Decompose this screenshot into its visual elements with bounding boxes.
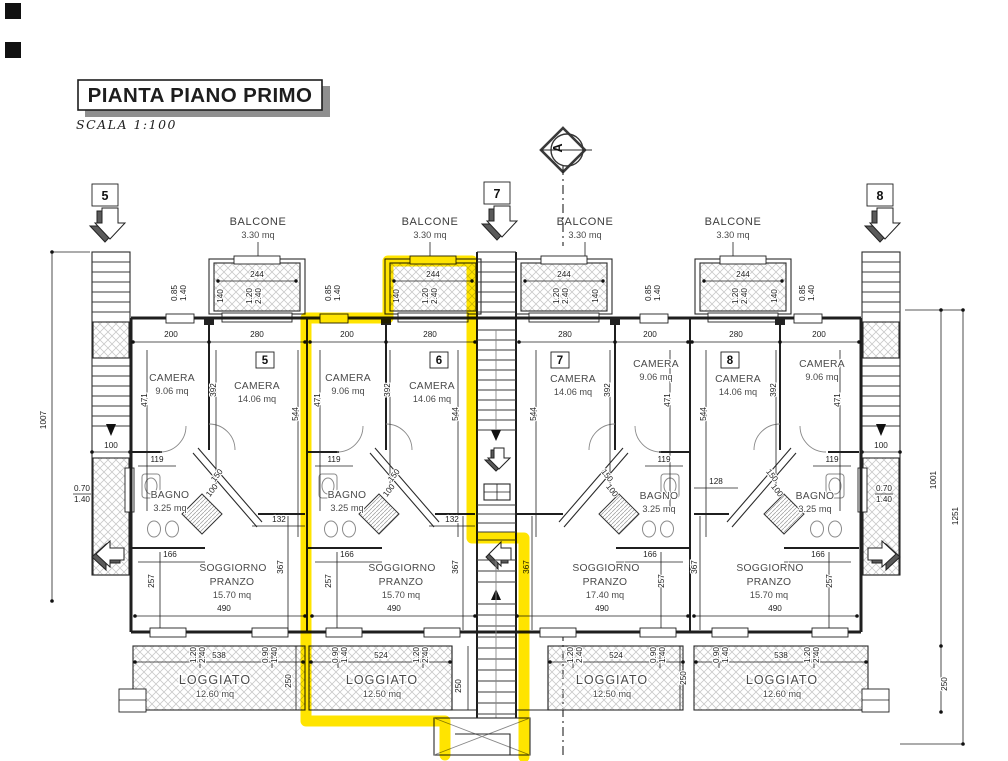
unit-number: 7 (557, 355, 563, 367)
dim: 0.90 (649, 647, 658, 663)
dim: 1.20 (421, 288, 430, 304)
shower (599, 494, 639, 534)
dim: 200 (164, 330, 178, 339)
room-label: CAMERA (149, 373, 195, 384)
dim: 1251 (951, 506, 960, 525)
room-label: CAMERA (409, 381, 455, 392)
room-area: 3.25 mq (153, 503, 186, 513)
dim: 257 (825, 574, 834, 588)
access-marker-5: 5 (90, 184, 125, 242)
dim: 544 (529, 407, 538, 421)
dim: 1.40 (340, 647, 349, 663)
access-marker-8: 8 (865, 184, 900, 242)
dim: 1.40 (270, 647, 279, 663)
dim: 2.40 (198, 647, 207, 663)
access-marker-7: 7 (482, 182, 517, 240)
dim: 1.40 (658, 647, 667, 663)
dim: 1.20 (552, 288, 561, 304)
stair-direction-arrow (491, 430, 501, 441)
dim: 150 (209, 467, 225, 484)
dim: 0.90 (261, 647, 270, 663)
balcone-area: 3.30 mq (241, 230, 274, 240)
dim: 200 (643, 330, 657, 339)
dim: 140 (770, 289, 779, 303)
dim: 1.20 (189, 647, 198, 663)
unit-number: 6 (436, 355, 442, 367)
dim: 250 (284, 674, 293, 688)
dim: 1.40 (74, 495, 90, 504)
stair-direction-arrow (876, 424, 886, 436)
left-exterior-stairs: 100 0.70 1.40 (73, 252, 134, 575)
room-area: 3.25 mq (642, 504, 675, 514)
scale-label: SCALA 1:100 (76, 117, 177, 132)
unit-number: 5 (262, 355, 269, 367)
dim: 128 (709, 477, 723, 486)
toilet (829, 521, 842, 537)
dim: 257 (324, 574, 333, 588)
dim: 367 (451, 560, 460, 574)
dim: 544 (699, 407, 708, 421)
crop-mark-square (5, 3, 21, 19)
dim: 257 (147, 574, 156, 588)
room-label: BAGNO (640, 491, 679, 502)
dim: 250 (454, 679, 463, 693)
room-area: 14.06 mq (554, 387, 592, 397)
dim: 244 (250, 270, 264, 279)
room-label: LOGGIATO (179, 673, 251, 687)
dim: 544 (291, 407, 300, 421)
dim: 2.40 (561, 288, 570, 304)
dim: 250 (679, 671, 688, 685)
dim: 490 (768, 604, 782, 613)
room-area: 3.25 mq (798, 504, 831, 514)
room-label: SOGGIORNO (368, 563, 435, 574)
dim: 0.85 (798, 285, 807, 301)
balcone-label: BALCONE (230, 216, 287, 228)
dim: 524 (609, 651, 623, 660)
room-area: 15.70 mq (750, 590, 788, 600)
dim: 392 (383, 383, 392, 397)
room-label: PRANZO (210, 577, 255, 588)
dim: 150 (764, 467, 780, 484)
dim: 490 (595, 604, 609, 613)
balcone-label: BALCONE (402, 216, 459, 228)
room-label: BAGNO (796, 491, 835, 502)
dim: 1.40 (807, 285, 816, 301)
page-title: PIANTA PIANO PRIMO (88, 84, 313, 107)
dim: 280 (558, 330, 572, 339)
unit-8: 280 200 544 392 471 8 CAMERA 14.06 mq CA… (690, 285, 868, 699)
room-area: 12.50 mq (593, 689, 631, 699)
balcone-area: 3.30 mq (716, 230, 749, 240)
room-area: 14.06 mq (238, 394, 276, 404)
dim: 1.20 (245, 288, 254, 304)
room-label: BAGNO (328, 490, 367, 501)
dim: 1.20 (566, 647, 575, 663)
dim: 166 (643, 550, 657, 559)
dim: 140 (591, 289, 600, 303)
bidet (343, 521, 356, 537)
dim: 244 (557, 270, 571, 279)
dim: 524 (374, 651, 388, 660)
balcone-label: BALCONE (557, 216, 614, 228)
toilet (325, 521, 338, 537)
dim: 119 (657, 455, 670, 464)
room-label: CAMERA (234, 381, 280, 392)
dim: 280 (423, 330, 437, 339)
dim: 150 (386, 467, 402, 484)
dim: 538 (774, 651, 788, 660)
unit-number: 8 (727, 355, 734, 367)
balcony-unit-8: 244 140 1.20 2.40 (695, 256, 791, 322)
dim: 2.40 (254, 288, 263, 304)
room-label: CAMERA (550, 374, 596, 385)
dim: 0.90 (331, 647, 340, 663)
dim: 1.20 (731, 288, 740, 304)
dim: 0.85 (324, 285, 333, 301)
dim: 538 (212, 651, 226, 660)
dim: 150 (599, 467, 615, 484)
dim: 2.40 (740, 288, 749, 304)
dim: 244 (426, 270, 440, 279)
dim: 1.20 (412, 647, 421, 663)
room-area: 15.70 mq (213, 590, 251, 600)
room-label: CAMERA (799, 359, 845, 370)
room-area: 3.25 mq (330, 503, 363, 513)
dim: 490 (217, 604, 231, 613)
balcone-area: 3.30 mq (413, 230, 446, 240)
dim: 280 (250, 330, 264, 339)
dim: 1.40 (333, 285, 342, 301)
dim: 367 (690, 560, 699, 574)
room-area: 9.06 mq (639, 372, 672, 382)
dim: 132 (272, 515, 286, 524)
room-area: 9.06 mq (331, 386, 364, 396)
room-area: 12.50 mq (363, 689, 401, 699)
dim: 367 (276, 560, 285, 574)
title-block: PIANTA PIANO PRIMO SCALA 1:100 (76, 80, 330, 132)
room-area: 17.40 mq (586, 590, 624, 600)
dim: 100 (204, 482, 220, 499)
section-letter: A (551, 143, 565, 152)
room-area: 9.06 mq (805, 372, 838, 382)
bidet (166, 521, 179, 537)
toilet (661, 521, 674, 537)
dim: 1007 (39, 410, 48, 429)
room-label: SOGGIORNO (736, 563, 803, 574)
room-label: PRANZO (379, 577, 424, 588)
balcone-label: BALCONE (705, 216, 762, 228)
room-area: 14.06 mq (719, 387, 757, 397)
balcony-unit-7: 244 140 1.20 2.40 (516, 256, 612, 322)
room-label: SOGGIORNO (572, 563, 639, 574)
room-label: CAMERA (715, 374, 761, 385)
room-label: LOGGIATO (346, 673, 418, 687)
room-label: PRANZO (747, 577, 792, 588)
marker-number: 5 (102, 189, 109, 203)
dim: 0.90 (712, 647, 721, 663)
dim: 200 (340, 330, 354, 339)
crop-marks (5, 3, 21, 58)
marker-number: 8 (877, 189, 884, 203)
dim: 1.40 (179, 285, 188, 301)
dim: 119 (825, 455, 838, 464)
dim: 166 (163, 550, 177, 559)
right-exterior-stairs: 100 0.70 1.40 (858, 252, 902, 575)
room-area: 12.60 mq (196, 689, 234, 699)
dim: 471 (833, 393, 842, 407)
dim: 1.40 (876, 495, 892, 504)
dim: 471 (663, 393, 672, 407)
dim: 0.70 (74, 484, 90, 493)
dim: 490 (387, 604, 401, 613)
dim: 132 (445, 515, 459, 524)
toilet (148, 521, 161, 537)
dim: 392 (603, 383, 612, 397)
dim: 2.40 (421, 647, 430, 663)
dim: 166 (811, 550, 825, 559)
room-label: BAGNO (151, 490, 190, 501)
dim: 0.70 (876, 484, 892, 493)
dim: 392 (209, 383, 218, 397)
room-area: 12.60 mq (763, 689, 801, 699)
dim: 1.40 (653, 285, 662, 301)
room-area: 14.06 mq (413, 394, 451, 404)
dim: 119 (150, 455, 163, 464)
bidet (811, 521, 824, 537)
dim: 100 (874, 441, 888, 450)
dim: 544 (451, 407, 460, 421)
dim: 100 (381, 482, 397, 499)
room-label: LOGGIATO (576, 673, 648, 687)
dim: 1001 (929, 470, 938, 489)
dim: 471 (313, 393, 322, 407)
stair-direction-arrow (106, 424, 116, 436)
balcone-area: 3.30 mq (568, 230, 601, 240)
room-label: LOGGIATO (746, 673, 818, 687)
dim: 2.40 (430, 288, 439, 304)
bidet (643, 521, 656, 537)
dim: 1.40 (721, 647, 730, 663)
dim: 392 (769, 383, 778, 397)
dim: 2.40 (575, 647, 584, 663)
dim: 250 (940, 677, 949, 691)
dim: 257 (657, 574, 666, 588)
room-area: 15.70 mq (382, 590, 420, 600)
marker-number: 7 (494, 187, 501, 201)
room-label: SOGGIORNO (199, 563, 266, 574)
dim: 140 (216, 289, 225, 303)
dim: 471 (140, 393, 149, 407)
dim: 100 (104, 441, 118, 450)
room-label: CAMERA (633, 359, 679, 370)
dim: 166 (340, 550, 354, 559)
room-area: 9.06 mq (155, 386, 188, 396)
dim: 1.20 (803, 647, 812, 663)
dim: 2.40 (812, 647, 821, 663)
dim: 0.85 (644, 285, 653, 301)
crop-mark-square (5, 42, 21, 58)
dim: 119 (327, 455, 340, 464)
balcony-unit-5: 244 140 1.20 2.40 (209, 256, 305, 322)
dim: 280 (729, 330, 743, 339)
dim: 200 (812, 330, 826, 339)
room-label: PRANZO (583, 577, 628, 588)
dim: 0.85 (170, 285, 179, 301)
floor-plan-drawing: PIANTA PIANO PRIMO SCALA 1:100 A 5 7 8 B… (0, 0, 1008, 761)
room-label: CAMERA (325, 373, 371, 384)
dim: 244 (736, 270, 750, 279)
